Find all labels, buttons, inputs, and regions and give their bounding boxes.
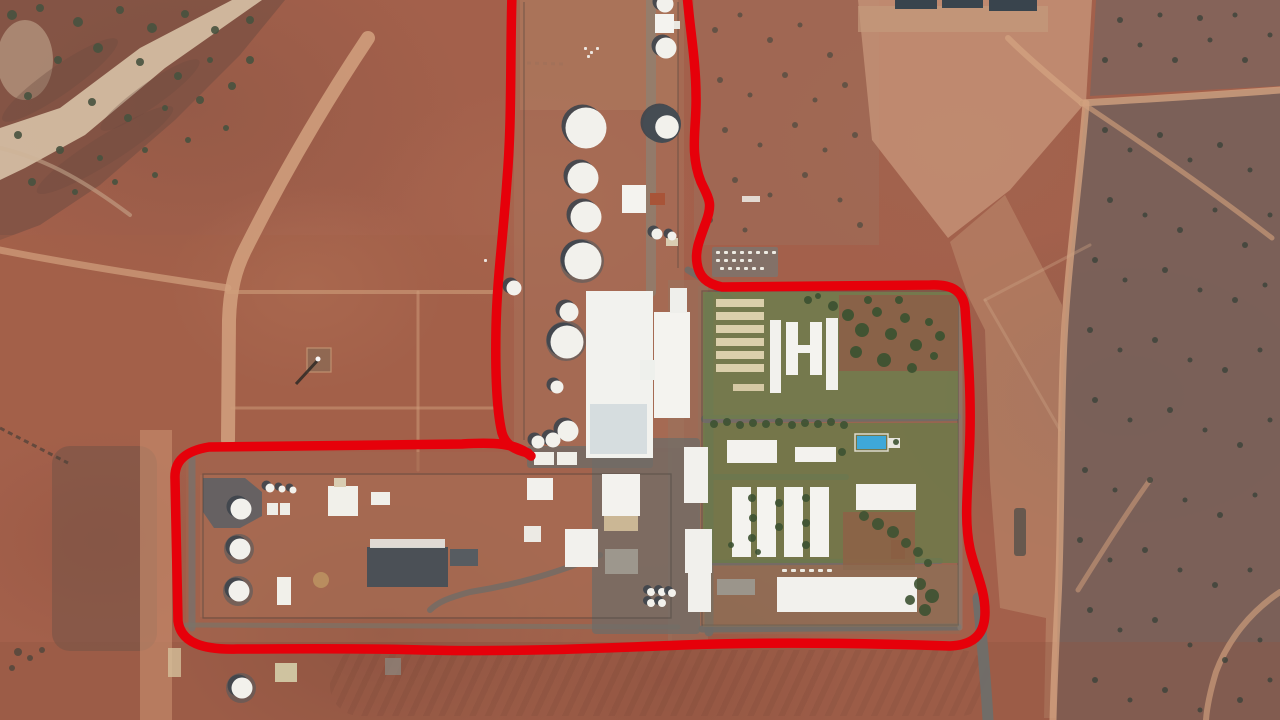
vegetation-dots-0-dot-26: [72, 189, 78, 195]
buildings-r-29: [716, 299, 764, 307]
vegetation-dots-5-dot-9: [842, 82, 848, 88]
buildings-r-47: [810, 487, 829, 557]
vegetation-dots-5-dot-4: [827, 52, 833, 58]
vegetation-dots-1-dot-6: [910, 339, 922, 351]
vegetation-dots-2-dot-1: [723, 418, 731, 426]
vegetation-dots-4-dot-43: [1118, 628, 1123, 633]
buildings-r-40: [797, 345, 811, 353]
vegetation-dots-0-dot-20: [56, 146, 64, 154]
vegetation-dots-4-dot-14: [1162, 267, 1168, 273]
domes-dome-13-sphere: [668, 232, 677, 241]
buildings-r-27: [370, 539, 445, 548]
vegetation-dots-4-dot-4: [1217, 142, 1223, 148]
vegetation-dots-0-dot-15: [162, 105, 168, 111]
domes-dome-31-sphere: [647, 599, 655, 607]
domes-dome-10-sphere: [571, 202, 602, 233]
domes-dome-14-sphere: [560, 303, 579, 322]
domes-dome-22-sphere: [230, 539, 251, 560]
vegetation-dots-4-dot-0: [1102, 127, 1108, 133]
vehicles-dash-0-vehicle-17: [752, 267, 756, 270]
vegetation-dots-3-dot-17: [893, 439, 899, 445]
vegetation-dots-1-dot-15: [804, 296, 812, 304]
asphalt-r-14: [712, 247, 778, 277]
buildings-r-8: [654, 312, 690, 418]
buildings-r-37: [826, 318, 838, 390]
vegetation-dots-1-dot-0: [828, 301, 838, 311]
vegetation-dots-0-dot-17: [228, 82, 236, 90]
vegetation-dots-5-dot-21: [743, 228, 748, 233]
buildings-c-25: [313, 572, 329, 588]
buildings-r-32: [716, 338, 764, 346]
vegetation-dots-0-dot-23: [185, 137, 191, 143]
vegetation-dots-4-dot-29: [1268, 418, 1273, 423]
vegetation-dots-4-dot-61: [1158, 13, 1163, 18]
terrain-p-7: [858, 0, 1092, 238]
vegetation-dots-0-dot-3: [116, 6, 124, 14]
vegetation-dots-4-dot-6: [1107, 197, 1113, 203]
vehicles-dash-0-vehicle-1: [724, 251, 728, 254]
vegetation-dots-5-dot-2: [767, 37, 773, 43]
vegetation-dots-4-dot-2: [1157, 132, 1163, 138]
vegetation-dots-5-dot-10: [722, 127, 728, 133]
vegetation-dots-4-dot-54: [1102, 57, 1108, 63]
vegetation-dots-3-dot-3: [775, 499, 783, 507]
terrain-r-12: [0, 642, 1280, 720]
vegetation-dots-4-dot-53: [1268, 678, 1273, 683]
vegetation-dots-4-dot-62: [1197, 15, 1203, 21]
terrain-r-6: [694, 0, 879, 245]
vegetation-dots-5-dot-3: [798, 23, 803, 28]
vegetation-dots-4-dot-25: [1128, 418, 1133, 423]
vegetation-dots-5-dot-14: [852, 132, 858, 138]
buildings-r-21: [328, 486, 358, 516]
vegetation-dots-0-dot-5: [181, 10, 189, 18]
vehicles-dash-2-vehicle-3: [587, 55, 590, 58]
vegetation-dots-4-dot-33: [1183, 498, 1188, 503]
vehicles-dash-0-vehicle-15: [736, 267, 740, 270]
buildings-r-55: [385, 658, 401, 675]
vegetation-dots-2-dot-3: [749, 419, 757, 427]
vegetation-dots-4-dot-38: [1142, 547, 1148, 553]
vehicles-dash-2-vehicle-4: [484, 259, 487, 262]
vegetation-dots-4-dot-22: [1222, 367, 1228, 373]
vehicles-dash-2-vehicle-0: [584, 47, 587, 50]
vegetation-dots-5-dot-15: [732, 177, 738, 183]
vegetation-dots-4-dot-20: [1152, 337, 1158, 343]
vehicles-dash-0-vehicle-0: [716, 251, 720, 254]
vegetation-dots-5-dot-17: [802, 172, 808, 178]
vegetation-dots-4-dot-8: [1177, 227, 1183, 233]
vehicles-dash-0-vehicle-13: [720, 267, 724, 270]
vegetation-dots-5-dot-7: [782, 72, 788, 78]
ponds-r-3: [989, 0, 1037, 11]
domes-dome-9-sphere: [568, 163, 599, 194]
vehicles-dash-0-vehicle-2: [732, 251, 736, 254]
domes-dome-15-sphere: [551, 326, 584, 359]
satellite-svg: [0, 0, 1280, 720]
vegetation-dots-1-dot-1: [842, 309, 854, 321]
vegetation-dots-3-dot-0: [748, 494, 756, 502]
ponds-r-2: [942, 0, 983, 8]
domes-dome-26-sphere: [279, 486, 286, 493]
buildings-r-30: [716, 312, 764, 320]
domes-dome-8-sphere: [655, 115, 679, 139]
domes-dome-12-sphere: [652, 229, 663, 240]
vegetation-dots-3-dot-12: [887, 526, 899, 538]
vegetation-dots-1-dot-10: [877, 353, 891, 367]
domes-dome-23-sphere: [229, 581, 250, 602]
vehicles-dash-1-vehicle-2: [800, 569, 805, 572]
vegetation-dots-4-dot-46: [1222, 657, 1228, 663]
vegetation-dots-4-dot-18: [1087, 327, 1093, 333]
vegetation-dots-5-dot-18: [838, 198, 843, 203]
vegetation-dots-4-dot-49: [1128, 698, 1133, 703]
buildings-r-35: [733, 384, 764, 391]
vegetation-dots-4-dot-42: [1087, 607, 1093, 613]
vehicles-dash-1-vehicle-5: [827, 569, 832, 572]
vegetation-dots-2-dot-6: [788, 421, 796, 429]
vegetation-dots-5-dot-11: [758, 143, 763, 148]
vegetation-dots-0-dot-7: [93, 43, 103, 53]
vegetation-dots-4-dot-31: [1113, 488, 1118, 493]
domes-dome-18-sphere: [546, 433, 561, 448]
terrain-r-16: [1014, 508, 1026, 556]
vehicles-dash-2-vehicle-1: [590, 51, 593, 54]
domes-dome-32-sphere: [658, 599, 666, 607]
vegetation-dots-0-dot-25: [28, 178, 36, 186]
vegetation-dots-4-dot-32: [1147, 477, 1153, 483]
buildings-r-42: [795, 447, 836, 462]
vegetation-dots-4-dot-51: [1198, 708, 1203, 713]
vegetation-dots-4-dot-5: [1248, 168, 1253, 173]
vegetation-dots-3-dot-14: [913, 547, 923, 557]
domes-dome-11-sphere: [565, 243, 602, 280]
buildings-r-24: [277, 577, 291, 605]
structures-c-2: [316, 357, 321, 362]
buildings-r-54: [717, 579, 755, 595]
vegetation-dots-0-dot-4: [147, 23, 157, 33]
vegetation-dots-5-dot-13: [823, 148, 828, 153]
vegetation-dots-1-dot-11: [907, 363, 917, 373]
vegetation-dots-4-dot-17: [1263, 283, 1268, 288]
vegetation-dots-3-dot-8: [728, 542, 734, 548]
vegetation-dots-3-dot-9: [755, 549, 761, 555]
vehicles-dash-1-vehicle-3: [809, 569, 814, 572]
vegetation-dots-3-dot-13: [901, 538, 911, 548]
vegetation-dots-4-dot-57: [1208, 38, 1213, 43]
vegetation-dots-3-dot-11: [872, 518, 884, 530]
vehicles-dash-0-vehicle-10: [732, 259, 736, 262]
vegetation-dots-4-dot-44: [1152, 617, 1158, 623]
vegetation-dots-4-dot-9: [1213, 208, 1218, 213]
vegetation-dots-5-dot-6: [748, 93, 753, 98]
vegetation-dots-4-dot-30: [1082, 467, 1088, 473]
vegetation-dots-0-dot-6: [211, 26, 219, 34]
domes-dome-6-sphere: [656, 38, 677, 59]
vegetation-dots-4-dot-27: [1203, 428, 1208, 433]
vehicles-dash-1-vehicle-0: [782, 569, 787, 572]
asphalt-s-6: [702, 627, 958, 629]
terrain-r-14: [140, 430, 172, 720]
vehicles-dash-0-vehicle-14: [728, 267, 732, 270]
vegetation-dots-0-dot-16: [196, 96, 204, 104]
vegetation-dots-1-dot-3: [872, 307, 882, 317]
domes-dome-21-sphere: [231, 499, 252, 520]
vegetation-dots-0-dot-1: [36, 4, 44, 12]
buildings-r-16: [565, 529, 598, 567]
domes-dome-25-sphere: [266, 484, 275, 493]
domes-dome-24-sphere: [232, 678, 253, 699]
vegetation-dots-4-dot-24: [1092, 397, 1098, 403]
buildings-r-45: [757, 487, 776, 557]
vegetation-dots-0-dot-2: [73, 17, 83, 27]
buildings-r-52: [685, 529, 712, 573]
vegetation-dots-3-dot-2: [748, 534, 756, 542]
vegetation-dots-4-dot-34: [1217, 512, 1223, 518]
satellite-image-frame: [0, 0, 1280, 720]
vegetation-dots-0-dot-22: [142, 147, 148, 153]
vegetation-dots-2-dot-8: [814, 420, 822, 428]
vehicles-dash-0-vehicle-16: [744, 267, 748, 270]
vegetation-dots-3-dot-15: [924, 559, 932, 567]
vegetation-dots-4-dot-37: [1108, 558, 1113, 563]
vegetation-dots-0-dot-9: [136, 58, 144, 66]
lawns-r-5: [857, 436, 886, 449]
vegetation-dots-3-dot-19: [925, 589, 939, 603]
vegetation-dots-3-dot-7: [802, 541, 810, 549]
vegetation-dots-2-dot-7: [801, 419, 809, 427]
buildings-r-1: [674, 21, 680, 29]
buildings-r-50: [777, 577, 917, 612]
vegetation-dots-1-dot-8: [935, 331, 945, 341]
vegetation-dots-3-dot-5: [802, 494, 810, 502]
vegetation-dots-4-dot-26: [1167, 407, 1173, 413]
vegetation-dots-4-dot-41: [1248, 568, 1253, 573]
vegetation-dots-4-dot-16: [1232, 297, 1238, 303]
vegetation-dots-4-dot-13: [1123, 278, 1128, 283]
vegetation-dots-1-dot-5: [900, 313, 910, 323]
vehicles-dash-0-vehicle-12: [748, 259, 752, 262]
vegetation-dots-5-dot-1: [738, 13, 743, 18]
buildings-r-56: [275, 663, 297, 682]
vegetation-dots-0-dot-11: [207, 57, 213, 63]
vegetation-dots-1-dot-13: [864, 296, 872, 304]
vegetation-dots-4-dot-55: [1138, 43, 1143, 48]
terrain-p-8: [1090, 0, 1280, 96]
vehicles-dash-1-vehicle-4: [818, 569, 823, 572]
vegetation-dots-0-dot-19: [14, 131, 22, 139]
buildings-r-20: [280, 503, 290, 515]
vegetation-dots-2-dot-10: [840, 421, 848, 429]
vehicles-dash-0-vehicle-5: [756, 251, 760, 254]
vehicles-dash-0-vehicle-7: [772, 251, 776, 254]
buildings-r-18: [605, 549, 638, 574]
vegetation-dots-0-dot-13: [88, 98, 96, 106]
vegetation-dots-0-dot-14: [124, 114, 132, 122]
vegetation-dots-2-dot-0: [710, 420, 718, 428]
buildings-r-34: [716, 364, 764, 372]
buildings-r-28: [450, 549, 478, 566]
vegetation-dots-5-dot-19: [857, 222, 863, 228]
vegetation-dots-4-dot-21: [1188, 358, 1193, 363]
vegetation-dots-1-dot-7: [925, 318, 933, 326]
vegetation-dots-4-dot-56: [1172, 57, 1178, 63]
vegetation-dots-3-dot-4: [775, 523, 783, 531]
vegetation-dots-0-dot-29: [246, 16, 254, 24]
vegetation-dots-6-dot-3: [9, 665, 15, 671]
vegetation-dots-3-dot-20: [919, 604, 931, 616]
vegetation-dots-3-dot-18: [914, 578, 926, 590]
vegetation-dots-1-dot-9: [850, 346, 862, 358]
buildings-r-36: [770, 320, 781, 393]
buildings-r-53: [688, 573, 711, 612]
vehicles-dash-2-vehicle-2: [596, 47, 599, 50]
vegetation-dots-0-dot-24: [223, 125, 229, 131]
vegetation-dots-0-dot-18: [246, 56, 254, 64]
vegetation-dots-3-dot-21: [905, 595, 915, 605]
vehicles-dash-0-vehicle-9: [724, 259, 728, 262]
buildings-r-12: [557, 452, 577, 465]
vegetation-dots-0-dot-8: [54, 56, 62, 64]
vehicles-dash-0-vehicle-3: [740, 251, 744, 254]
vegetation-dots-4-dot-12: [1092, 257, 1098, 263]
vegetation-dots-4-dot-10: [1242, 242, 1248, 248]
buildings-r-0: [655, 14, 674, 33]
vegetation-dots-3-dot-16: [838, 448, 846, 456]
vegetation-dots-4-dot-7: [1143, 213, 1148, 218]
vegetation-dots-0-dot-10: [174, 72, 182, 80]
vegetation-dots-4-dot-1: [1128, 148, 1133, 153]
vegetation-dots-4-dot-28: [1237, 442, 1243, 448]
vegetation-dots-4-dot-60: [1117, 17, 1123, 23]
buildings-r-3: [650, 193, 665, 205]
domes-dome-20-sphere: [507, 281, 522, 296]
vehicles-dash-0-vehicle-4: [748, 251, 752, 254]
buildings-r-14: [602, 474, 640, 516]
buildings-r-51: [684, 447, 708, 503]
domes-dome-19-sphere: [532, 436, 545, 449]
vegetation-dots-6-dot-2: [39, 647, 45, 653]
vegetation-dots-4-dot-50: [1162, 687, 1168, 693]
buildings-r-23: [371, 492, 390, 505]
vegetation-dots-4-dot-40: [1212, 582, 1218, 588]
buildings-r-26: [367, 547, 448, 587]
domes-dome-28-sphere: [647, 588, 655, 596]
vegetation-dots-3-dot-6: [802, 519, 810, 527]
vegetation-dots-4-dot-58: [1242, 57, 1248, 63]
vegetation-dots-1-dot-4: [885, 328, 897, 340]
buildings-r-39: [810, 322, 822, 375]
vegetation-dots-1-dot-16: [815, 293, 821, 299]
buildings-r-31: [716, 325, 764, 333]
vehicles-dash-0-vehicle-18: [760, 267, 764, 270]
vegetation-dots-5-dot-5: [717, 77, 723, 83]
vegetation-dots-0-dot-0: [7, 10, 17, 20]
vegetation-dots-4-dot-52: [1237, 697, 1243, 703]
vegetation-dots-3-dot-10: [859, 511, 869, 521]
vegetation-dots-4-dot-47: [1258, 638, 1263, 643]
vegetation-dots-4-dot-23: [1258, 348, 1263, 353]
buildings-r-10: [640, 360, 655, 380]
buildings-r-15: [604, 516, 638, 531]
vegetation-dots-6-dot-0: [14, 648, 22, 656]
vegetation-dots-2-dot-4: [762, 420, 770, 428]
vegetation-dots-4-dot-19: [1118, 348, 1123, 353]
vegetation-dots-4-dot-45: [1188, 643, 1193, 648]
vegetation-dots-2-dot-5: [775, 418, 783, 426]
vegetation-dots-4-dot-39: [1178, 568, 1183, 573]
buildings-r-22: [334, 478, 346, 487]
buildings-r-11: [534, 452, 554, 465]
buildings-r-33: [716, 351, 764, 359]
vehicles-dash-0-vehicle-6: [764, 251, 768, 254]
buildings-r-48: [856, 484, 916, 510]
vegetation-dots-4-dot-35: [1253, 493, 1258, 498]
vegetation-dots-4-dot-59: [1268, 33, 1273, 38]
vegetation-dots-4-dot-36: [1077, 537, 1083, 543]
domes-dome-27-sphere: [290, 487, 297, 494]
ponds-r-1: [895, 0, 937, 9]
domes-dome-7-sphere: [566, 108, 607, 149]
vegetation-dots-4-dot-11: [1268, 213, 1273, 218]
vegetation-dots-0-dot-12: [24, 92, 32, 100]
vehicles-dash-0-vehicle-11: [740, 259, 744, 262]
buildings-r-46: [784, 487, 803, 557]
vegetation-dots-6-dot-1: [27, 655, 33, 661]
buildings-r-17: [524, 526, 541, 542]
vegetation-dots-4-dot-63: [1233, 13, 1238, 18]
buildings-r-7: [590, 404, 647, 454]
vegetation-dots-5-dot-16: [768, 193, 773, 198]
buildings-r-57: [168, 648, 181, 677]
buildings-r-9: [670, 288, 687, 313]
vegetation-dots-0-dot-21: [97, 155, 103, 161]
vegetation-dots-5-dot-0: [712, 27, 718, 33]
vegetation-dots-5-dot-8: [813, 98, 818, 103]
vegetation-dots-4-dot-48: [1092, 677, 1098, 683]
buildings-r-13: [527, 478, 553, 500]
domes-dome-17-sphere: [558, 421, 579, 442]
buildings-r-38: [786, 322, 798, 375]
buildings-r-19: [267, 503, 278, 515]
vegetation-dots-4-dot-15: [1198, 288, 1203, 293]
vegetation-dots-1-dot-2: [855, 323, 869, 337]
vegetation-dots-2-dot-9: [827, 418, 835, 426]
buildings-r-5: [742, 196, 760, 202]
vegetation-dots-5-dot-12: [792, 122, 798, 128]
domes-dome-30-sphere: [668, 589, 676, 597]
vegetation-dots-3-dot-1: [749, 514, 757, 522]
vegetation-dots-4-dot-3: [1188, 158, 1193, 163]
vegetation-dots-1-dot-14: [895, 296, 903, 304]
domes-dome-16-sphere: [551, 381, 564, 394]
vehicles-dash-1-vehicle-1: [791, 569, 796, 572]
vegetation-dots-1-dot-12: [930, 352, 938, 360]
vehicles-dash-0-vehicle-8: [716, 259, 720, 262]
vegetation-dots-0-dot-27: [112, 179, 118, 185]
vegetation-dots-2-dot-2: [736, 421, 744, 429]
buildings-r-2: [622, 185, 646, 213]
buildings-r-41: [727, 440, 777, 463]
vegetation-dots-0-dot-28: [152, 172, 158, 178]
